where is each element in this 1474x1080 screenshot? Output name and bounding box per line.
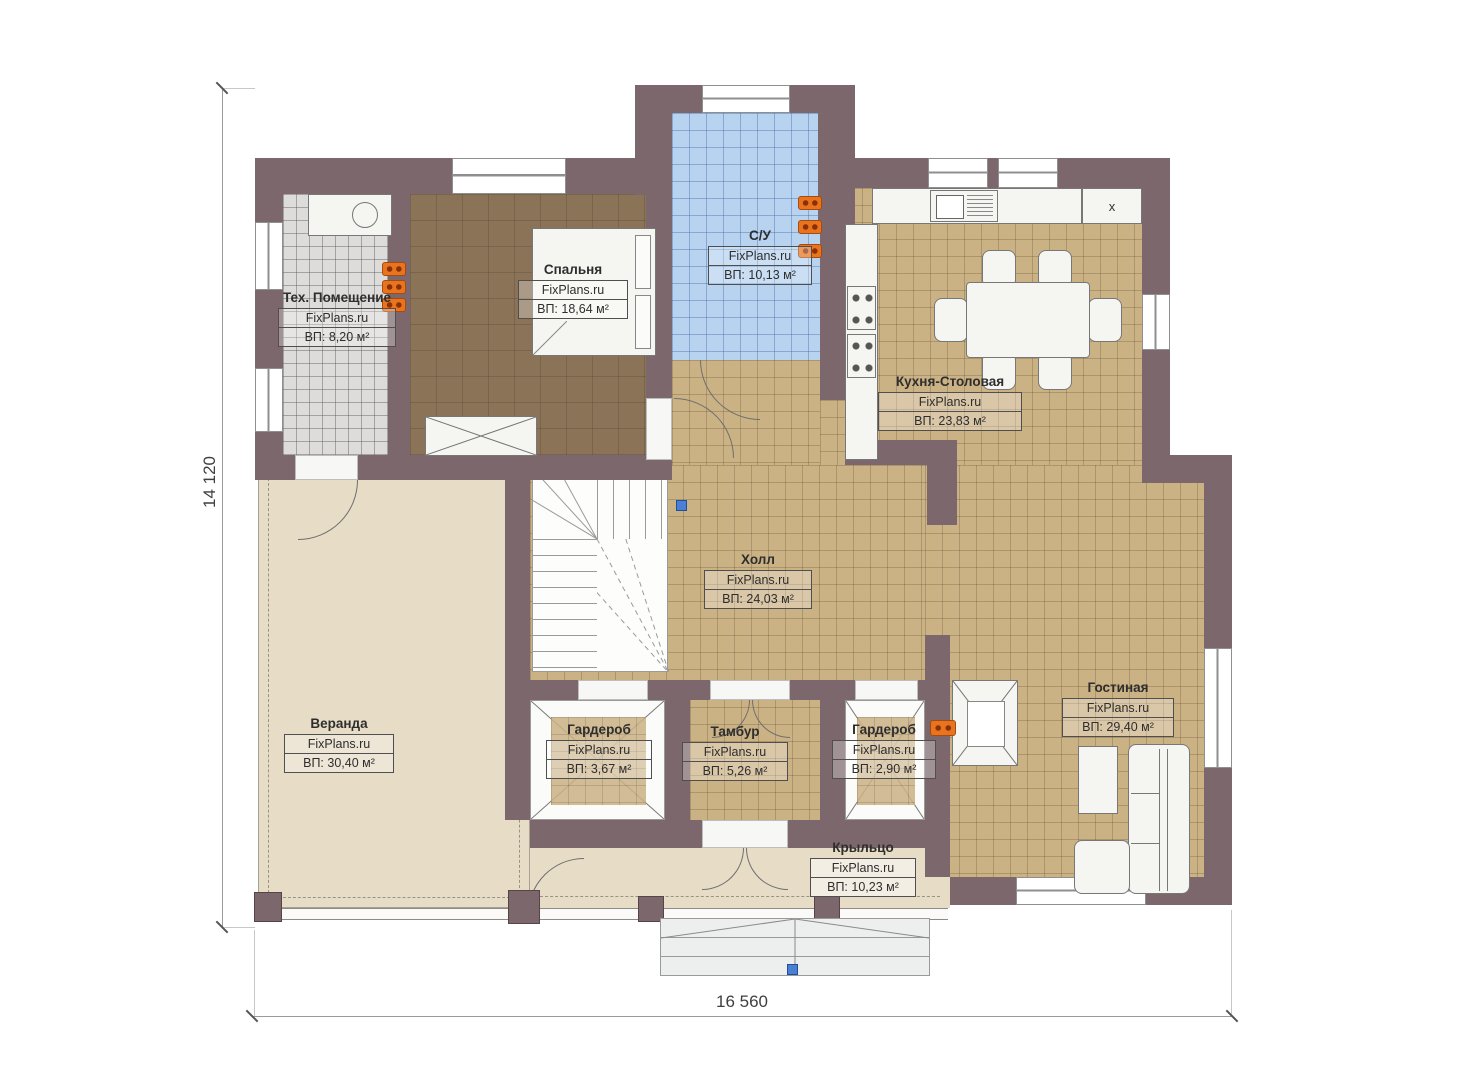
wall: [255, 455, 295, 480]
bed-fold-line: [533, 321, 567, 355]
door-opening: [578, 680, 648, 700]
section-marker: [787, 964, 798, 975]
room-label-bathroom: С/У FixPlans.ruВП: 10,13 м²: [708, 228, 812, 285]
window: [1142, 294, 1170, 350]
room-area: ВП: 3,67 м²: [547, 759, 651, 778]
floor-plan: x Тех. Помещение FixPlans.ruВП: 8,20: [0, 0, 1474, 1080]
door-opening: [295, 455, 358, 480]
veranda-column: [254, 892, 282, 922]
extension-line: [222, 927, 255, 928]
dimension-line-vertical: [222, 88, 223, 928]
coffee-table: [1078, 746, 1118, 814]
room-brand: FixPlans.ru: [279, 309, 395, 327]
room-area: ВП: 5,26 м²: [683, 761, 787, 780]
room-area: ВП: 10,13 м²: [709, 265, 811, 284]
window: [702, 85, 790, 113]
tech-sink-icon: [352, 202, 378, 228]
kitchen-appliance: x: [1082, 188, 1142, 224]
room-brand: FixPlans.ru: [709, 247, 811, 265]
room-area: ВП: 24,03 м²: [705, 589, 811, 608]
room-name: Холл: [704, 552, 812, 568]
door-opening: [646, 398, 672, 460]
sink-basin: [936, 195, 964, 219]
fireplace-inner: [967, 701, 1005, 747]
room-label-veranda: Веранда FixPlans.ruВП: 30,40 м²: [284, 716, 394, 773]
room-label-tech: Тех. Помещение FixPlans.ruВП: 8,20 м²: [278, 290, 396, 347]
wall: [505, 480, 530, 820]
dimension-label-height: 14 120: [200, 422, 220, 542]
room-label-kitchen: Кухня-Столовая FixPlans.ruВП: 23,83 м²: [878, 374, 1022, 431]
sofa-cushion-line: [1159, 749, 1160, 891]
wall: [918, 680, 950, 700]
room-label-porch: Крыльцо FixPlans.ruВП: 10,23 м²: [810, 840, 916, 897]
fireplace: [952, 680, 1018, 766]
bedroom-wardrobe: [425, 416, 537, 456]
stair-treads-lower: [533, 539, 597, 673]
room-name: С/У: [708, 228, 812, 244]
dimension-label-width: 16 560: [682, 992, 802, 1012]
room-label-vestibule: Тамбур FixPlans.ruВП: 5,26 м²: [682, 724, 788, 781]
room-area: ВП: 18,64 м²: [519, 299, 627, 318]
sink-drainer: [967, 195, 993, 217]
tech-counter: [308, 194, 392, 236]
sofa-cushion-line: [1167, 749, 1168, 891]
stove-burners: [847, 334, 876, 378]
room-brand: FixPlans.ru: [833, 741, 935, 759]
staircase: [532, 468, 668, 672]
veranda-column: [508, 890, 540, 924]
room-label-wardrobe-2: Гардероб FixPlans.ruВП: 2,90 м²: [832, 722, 936, 779]
bed-pillow: [635, 235, 651, 289]
sofa-cushion-line: [1131, 843, 1159, 844]
room-area: ВП: 23,83 м²: [879, 411, 1021, 430]
room-name: Кухня-Столовая: [878, 374, 1022, 390]
door-opening: [702, 820, 788, 848]
window: [255, 222, 283, 290]
wardrobe-cross-icon: [426, 417, 536, 455]
dining-table: [966, 282, 1090, 358]
window: [998, 158, 1058, 188]
stove-burners: [847, 286, 876, 330]
room-label-bedroom: Спальня FixPlans.ruВП: 18,64 м²: [518, 262, 628, 319]
room-brand: FixPlans.ru: [705, 571, 811, 589]
kitchen-sink: [930, 190, 998, 222]
wall: [530, 820, 702, 848]
room-name: Тамбур: [682, 724, 788, 740]
room-name: Гардероб: [832, 722, 936, 738]
stair-dashed-winder: [597, 539, 669, 673]
section-marker: [676, 500, 687, 511]
wall: [530, 680, 578, 700]
room-label-wardrobe-1: Гардероб FixPlans.ruВП: 3,67 м²: [546, 722, 652, 779]
sofa-chaise: [1074, 840, 1130, 894]
room-name: Крыльцо: [810, 840, 916, 856]
room-area: ВП: 8,20 м²: [279, 327, 395, 346]
room-brand: FixPlans.ru: [285, 735, 393, 753]
extension-line: [1231, 910, 1232, 1016]
window: [1204, 648, 1232, 768]
door-opening: [710, 680, 790, 700]
page: { "brand": "FixPlans.ru", "dimensions": …: [0, 0, 1474, 1080]
wall: [927, 465, 957, 525]
radiator: [382, 262, 406, 276]
door-opening: [855, 680, 918, 700]
room-area: ВП: 30,40 м²: [285, 753, 393, 772]
dimension-line-horizontal: [252, 1016, 1232, 1017]
room-brand: FixPlans.ru: [1063, 699, 1173, 717]
room-brand: FixPlans.ru: [683, 743, 787, 761]
room-brand: FixPlans.ru: [811, 859, 915, 877]
wall: [818, 85, 855, 225]
room-area: ВП: 10,23 м²: [811, 877, 915, 896]
appliance-label: x: [1109, 199, 1116, 214]
dining-chair: [934, 298, 968, 342]
sofa: [1128, 744, 1190, 894]
wall: [820, 225, 845, 400]
extension-line: [254, 930, 255, 1016]
wall: [255, 158, 645, 194]
room-label-hall: Холл FixPlans.ruВП: 24,03 м²: [704, 552, 812, 609]
room-brand: FixPlans.ru: [519, 281, 627, 299]
room-name: Гардероб: [546, 722, 652, 738]
wall: [790, 680, 855, 700]
room-area: ВП: 29,40 м²: [1063, 717, 1173, 736]
room-brand: FixPlans.ru: [879, 393, 1021, 411]
room-name: Спальня: [518, 262, 628, 278]
extension-line: [222, 88, 255, 89]
room-name: Тех. Помещение: [278, 290, 396, 306]
wall: [648, 680, 710, 700]
room-name: Гостиная: [1062, 680, 1174, 696]
sofa-cushion-line: [1131, 793, 1159, 794]
wall: [358, 455, 672, 480]
dining-chair: [1088, 298, 1122, 342]
room-area: ВП: 2,90 м²: [833, 759, 935, 778]
window: [452, 158, 566, 194]
room-label-living: Гостиная FixPlans.ruВП: 29,40 м²: [1062, 680, 1174, 737]
window: [255, 368, 283, 432]
room-name: Веранда: [284, 716, 394, 732]
bed-pillow: [635, 295, 651, 349]
radiator: [798, 196, 822, 210]
room-brand: FixPlans.ru: [547, 741, 651, 759]
floor-corridor-patch: [820, 400, 845, 465]
window: [928, 158, 988, 188]
